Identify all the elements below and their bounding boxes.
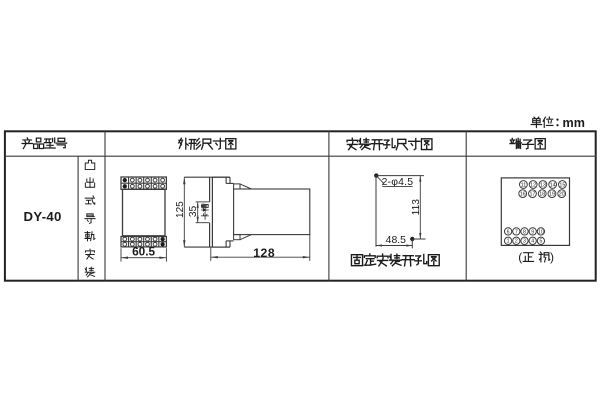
svg-text:5: 5 [539, 239, 542, 245]
svg-text:11: 11 [521, 182, 527, 188]
svg-text:60.5: 60.5 [132, 245, 155, 259]
svg-text:6: 6 [507, 229, 510, 235]
svg-text:113: 113 [411, 199, 422, 216]
svg-text:10: 10 [538, 229, 544, 235]
svg-text:48.5: 48.5 [386, 235, 406, 246]
svg-text:8: 8 [523, 229, 526, 235]
svg-text:125: 125 [175, 201, 186, 218]
svg-text:1: 1 [507, 239, 510, 245]
svg-text:): ) [550, 250, 554, 264]
svg-text:35: 35 [188, 206, 199, 218]
svg-text:18: 18 [539, 192, 545, 198]
svg-text:3: 3 [523, 239, 526, 245]
svg-text:19: 19 [549, 192, 555, 198]
svg-text:14: 14 [550, 182, 556, 188]
svg-text:17: 17 [529, 192, 535, 198]
svg-text:9: 9 [531, 229, 534, 235]
svg-text:20: 20 [559, 192, 565, 198]
svg-text:7: 7 [515, 229, 518, 235]
svg-text:4: 4 [531, 239, 534, 245]
svg-text:(: ( [518, 250, 522, 264]
svg-text:128: 128 [253, 246, 275, 260]
svg-text:16: 16 [520, 192, 526, 198]
svg-text:12: 12 [530, 182, 536, 188]
svg-text:15: 15 [559, 182, 565, 188]
svg-text:13: 13 [540, 182, 546, 188]
svg-text:2: 2 [515, 239, 518, 245]
svg-text:mm: mm [563, 116, 585, 130]
svg-text:DY-40: DY-40 [24, 209, 62, 224]
